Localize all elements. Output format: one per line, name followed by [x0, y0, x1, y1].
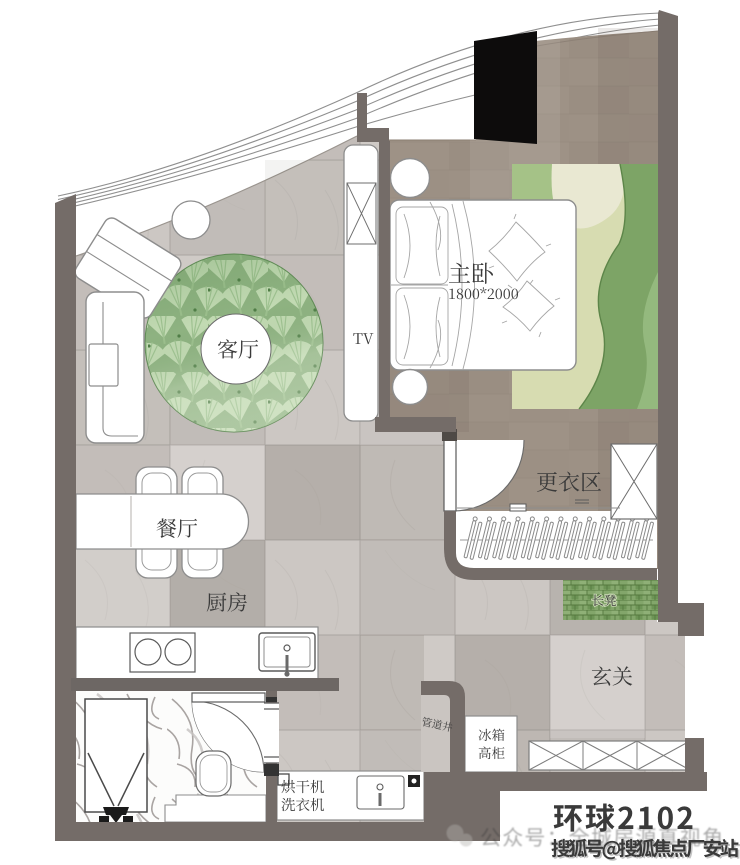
svg-text:客厅: 客厅: [217, 334, 259, 364]
svg-text:冰箱: 冰箱: [478, 724, 505, 744]
svg-text:洗衣机: 洗衣机: [281, 794, 325, 815]
svg-text:餐厅: 餐厅: [156, 513, 198, 543]
svg-text:长凳: 长凳: [591, 591, 616, 609]
svg-text:厨房: 厨房: [206, 587, 248, 617]
svg-text:TV: TV: [353, 328, 374, 349]
svg-text:1800*2000: 1800*2000: [448, 283, 519, 304]
svg-text:搜狐号@搜狐焦点厂安站: 搜狐号@搜狐焦点厂安站: [551, 833, 739, 862]
svg-text:更衣区: 更衣区: [536, 466, 602, 497]
svg-text:高柜: 高柜: [478, 742, 505, 762]
svg-text:玄关: 玄关: [591, 661, 633, 691]
